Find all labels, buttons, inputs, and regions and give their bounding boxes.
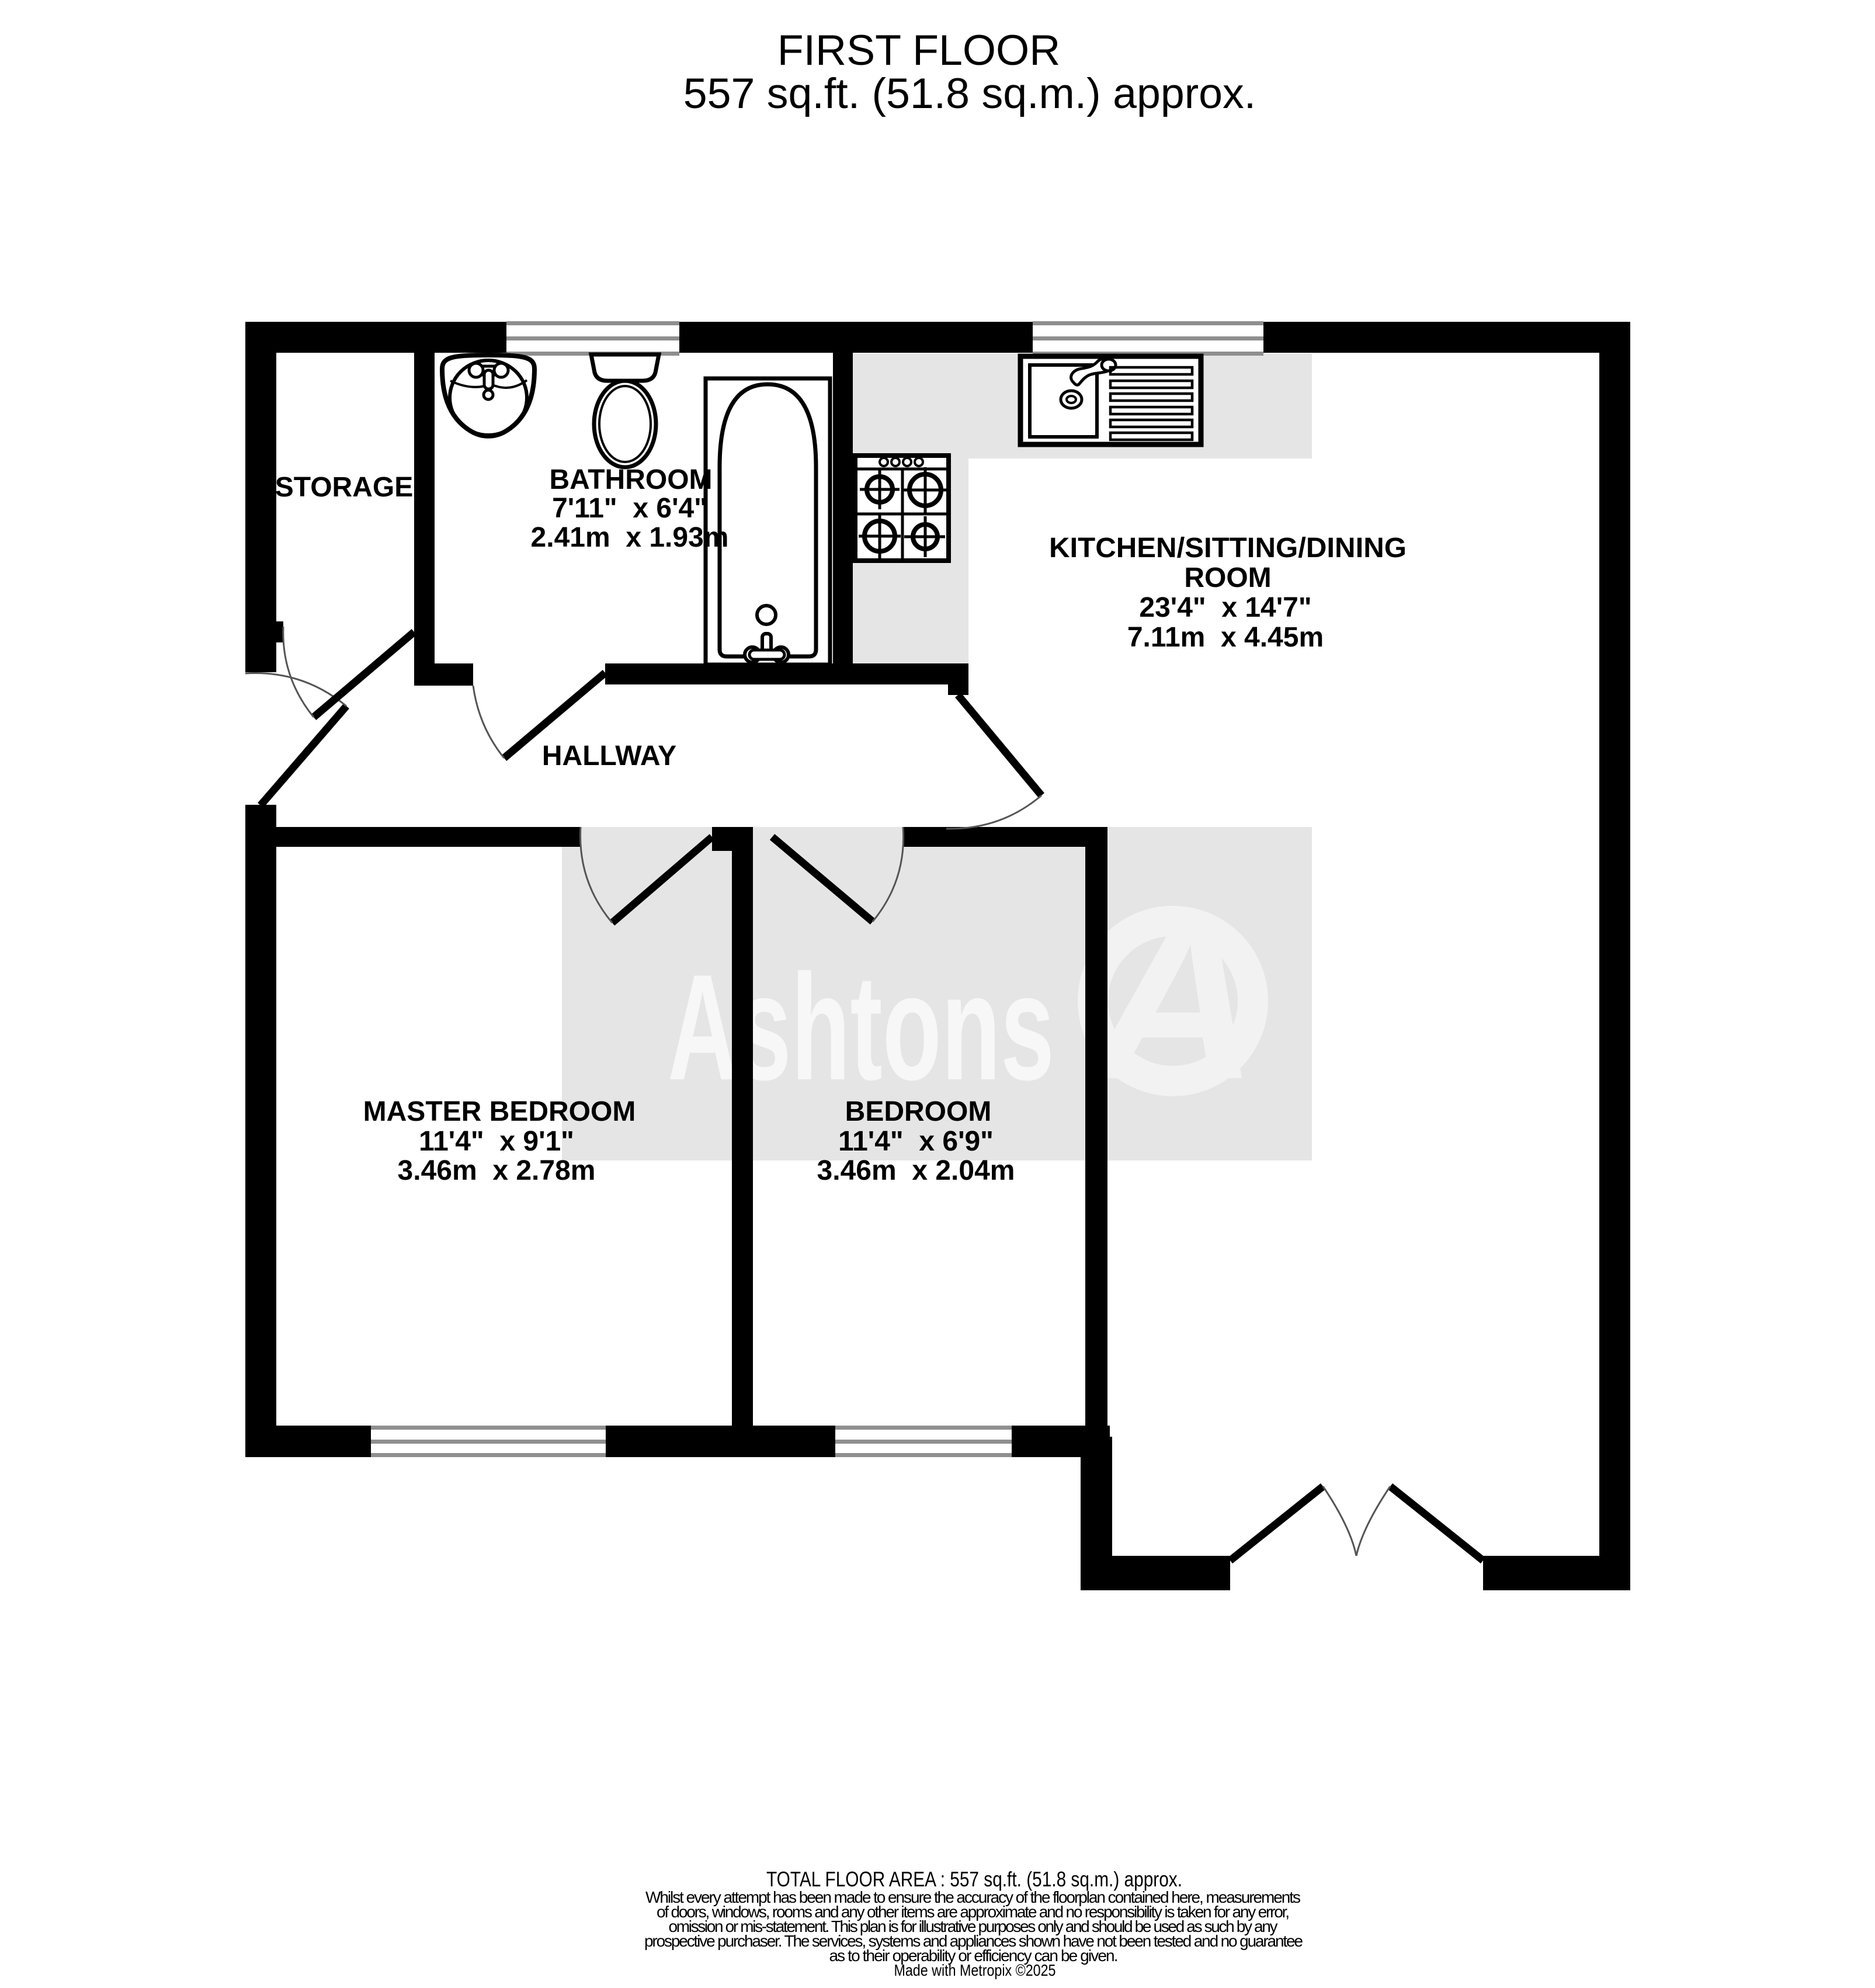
svg-text:FIRST FLOOR: FIRST FLOOR <box>777 26 1061 74</box>
svg-text:557 sq.ft. (51.8 sq.m.) approx: 557 sq.ft. (51.8 sq.m.) approx. <box>683 69 1256 117</box>
svg-text:BEDROOM: BEDROOM <box>845 1096 992 1127</box>
svg-text:Ashtons: Ashtons <box>668 943 1054 1111</box>
svg-text:ROOM: ROOM <box>1184 562 1271 593</box>
svg-text:MASTER BEDROOM: MASTER BEDROOM <box>363 1096 636 1127</box>
svg-text:7.11m x 4.45m: 7.11m x 4.45m <box>1127 622 1324 653</box>
svg-text:KITCHEN/SITTING/DINING: KITCHEN/SITTING/DINING <box>1049 533 1407 564</box>
svg-text:STORAGE: STORAGE <box>275 472 413 503</box>
svg-text:11'4" x 9'1": 11'4" x 9'1" <box>419 1126 574 1157</box>
svg-text:11'4" x 6'9": 11'4" x 6'9" <box>838 1126 994 1157</box>
svg-text:3.46m x 2.78m: 3.46m x 2.78m <box>398 1155 596 1186</box>
svg-text:BATHROOM: BATHROOM <box>549 464 712 495</box>
svg-text:A: A <box>1085 869 1259 1127</box>
svg-text:HALLWAY: HALLWAY <box>542 741 676 771</box>
svg-text:Made with Metropix ©2025: Made with Metropix ©2025 <box>894 1961 1056 1979</box>
svg-text:3.46m x 2.04m: 3.46m x 2.04m <box>817 1155 1015 1186</box>
svg-text:7'11" x 6'4": 7'11" x 6'4" <box>552 493 707 524</box>
svg-text:2.41m x 1.93m: 2.41m x 1.93m <box>531 522 729 553</box>
svg-text:23'4" x 14'7": 23'4" x 14'7" <box>1139 592 1311 623</box>
svg-text:TOTAL FLOOR AREA : 557 sq.ft.: TOTAL FLOOR AREA : 557 sq.ft. (51.8 sq.m… <box>766 1867 1182 1891</box>
